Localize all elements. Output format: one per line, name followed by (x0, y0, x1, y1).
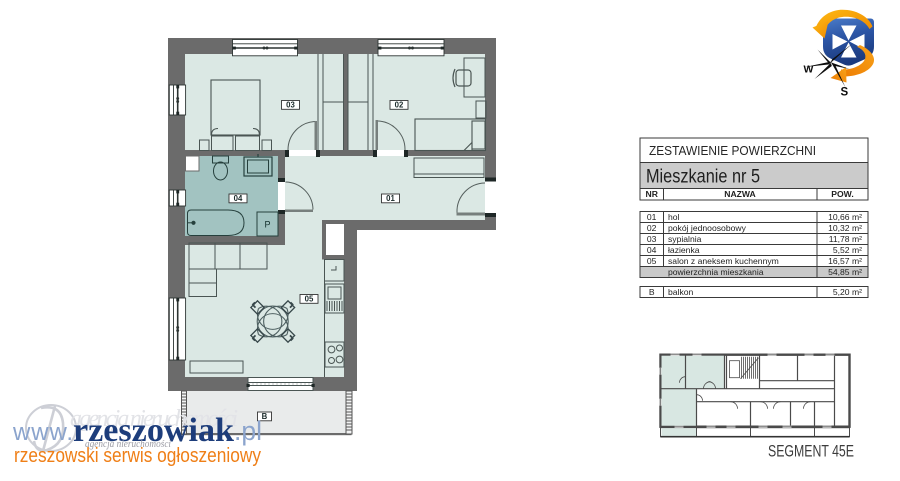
svg-text:03: 03 (647, 234, 657, 244)
svg-text:02: 02 (647, 223, 657, 233)
svg-text:POW.: POW. (831, 189, 853, 199)
svg-text:NAZWA: NAZWA (724, 189, 756, 199)
svg-text:balkon: balkon (668, 287, 694, 297)
svg-text:16,57 m²: 16,57 m² (828, 256, 862, 266)
svg-text:02: 02 (395, 101, 404, 110)
svg-text:www.: www. (12, 419, 73, 446)
svg-text:.pl: .pl (234, 416, 262, 446)
svg-text:05: 05 (647, 256, 657, 266)
svg-text:11,78 m²: 11,78 m² (829, 234, 862, 244)
svg-text:W: W (804, 64, 814, 76)
svg-text:sypialnia: sypialnia (668, 234, 702, 244)
svg-text:B: B (262, 412, 268, 421)
svg-text:01: 01 (647, 212, 657, 222)
svg-text:NR: NR (645, 189, 658, 199)
svg-text:łazienka: łazienka (668, 245, 700, 255)
svg-text:03: 03 (286, 101, 295, 110)
svg-text:hol: hol (668, 212, 680, 222)
svg-text:rzeszowski serwis ogłoszeniowy: rzeszowski serwis ogłoszeniowy (14, 444, 262, 467)
svg-text:10,32 m²: 10,32 m² (828, 223, 862, 233)
svg-text:5,20 m²: 5,20 m² (833, 287, 862, 297)
svg-text:pokój jednoosobowy: pokój jednoosobowy (668, 223, 747, 233)
svg-text:04: 04 (647, 245, 657, 255)
svg-text:5,52 m²: 5,52 m² (833, 245, 862, 255)
svg-text:SEGMENT 45E: SEGMENT 45E (768, 442, 854, 461)
svg-text:S: S (841, 87, 849, 99)
svg-text:ZESTAWIENIE POWIERZCHNI: ZESTAWIENIE POWIERZCHNI (649, 144, 816, 158)
svg-text:salon z aneksem kuchennym: salon z aneksem kuchennym (668, 256, 779, 266)
svg-text:P: P (264, 220, 270, 230)
svg-text:B: B (649, 287, 655, 297)
svg-text:10,66 m²: 10,66 m² (828, 212, 862, 222)
svg-text:01: 01 (386, 194, 395, 203)
svg-text:Mieszkanie nr 5: Mieszkanie nr 5 (646, 166, 760, 188)
svg-text:powierzchnia mieszkania: powierzchnia mieszkania (668, 267, 764, 277)
svg-text:05: 05 (305, 295, 314, 304)
svg-text:04: 04 (234, 194, 243, 203)
svg-text:54,85 m²: 54,85 m² (828, 267, 862, 277)
